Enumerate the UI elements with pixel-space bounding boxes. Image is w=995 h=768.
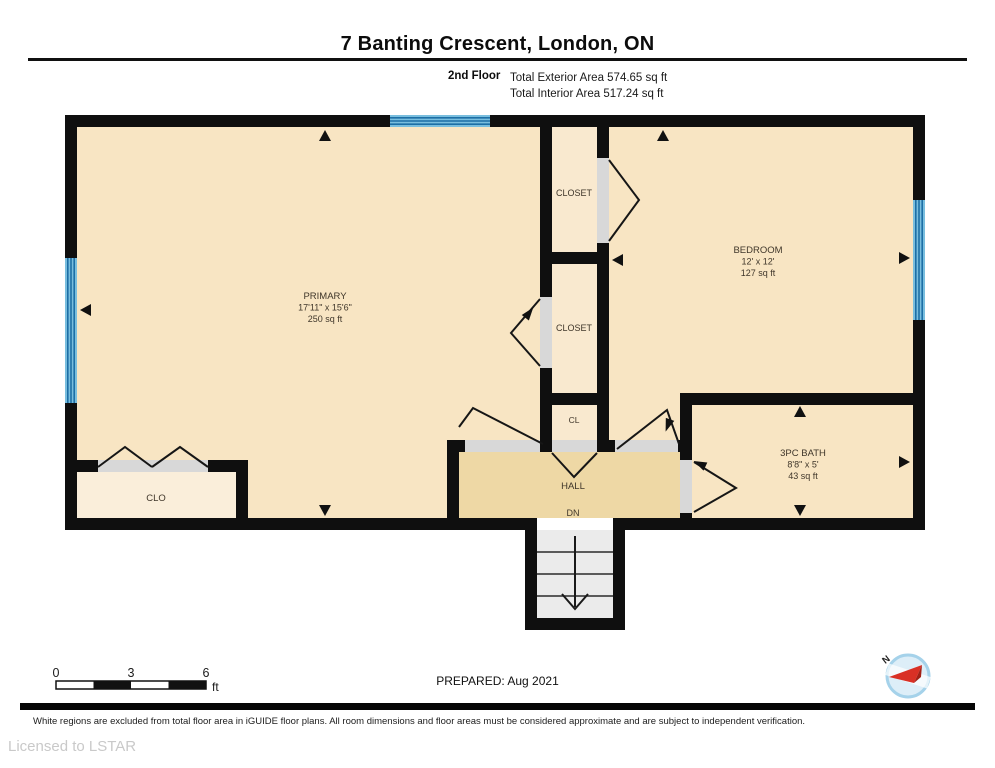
- bath-dims: 8'8" x 5': [787, 460, 818, 470]
- window-right: [913, 200, 925, 320]
- bedroom-dims: 12' x 12': [742, 257, 775, 267]
- stairs: [537, 530, 613, 618]
- hall-label: HALL: [561, 481, 585, 492]
- window-top: [390, 115, 490, 127]
- floor-plan: PRIMARY 17'11" x 15'6" 250 sq ft BEDROOM…: [0, 0, 995, 768]
- primary-area: 250 sq ft: [308, 314, 343, 324]
- footer-divider: [20, 703, 975, 710]
- closet-small-label: CL: [569, 415, 580, 425]
- primary-dims: 17'11" x 15'6": [298, 303, 352, 313]
- bedroom-area: 127 sq ft: [741, 268, 776, 278]
- closet-top-label: CLOSET: [556, 188, 593, 198]
- stairs-dn-label: DN: [567, 508, 580, 518]
- disclaimer-text: White regions are excluded from total fl…: [33, 716, 805, 727]
- prepared-date: PREPARED: Aug 2021: [0, 674, 995, 688]
- window-left: [65, 258, 77, 403]
- primary-name: PRIMARY: [303, 291, 347, 302]
- bath-area: 43 sq ft: [788, 471, 818, 481]
- bath-name: 3PC BATH: [780, 448, 826, 459]
- license-text: Licensed to LSTAR: [8, 738, 136, 755]
- closet-mid-label: CLOSET: [556, 323, 593, 333]
- closet-clo-label: CLO: [146, 493, 166, 504]
- bedroom-name: BEDROOM: [733, 245, 782, 256]
- floorplan-page: 7 Banting Crescent, London, ON 2nd Floor…: [0, 0, 995, 768]
